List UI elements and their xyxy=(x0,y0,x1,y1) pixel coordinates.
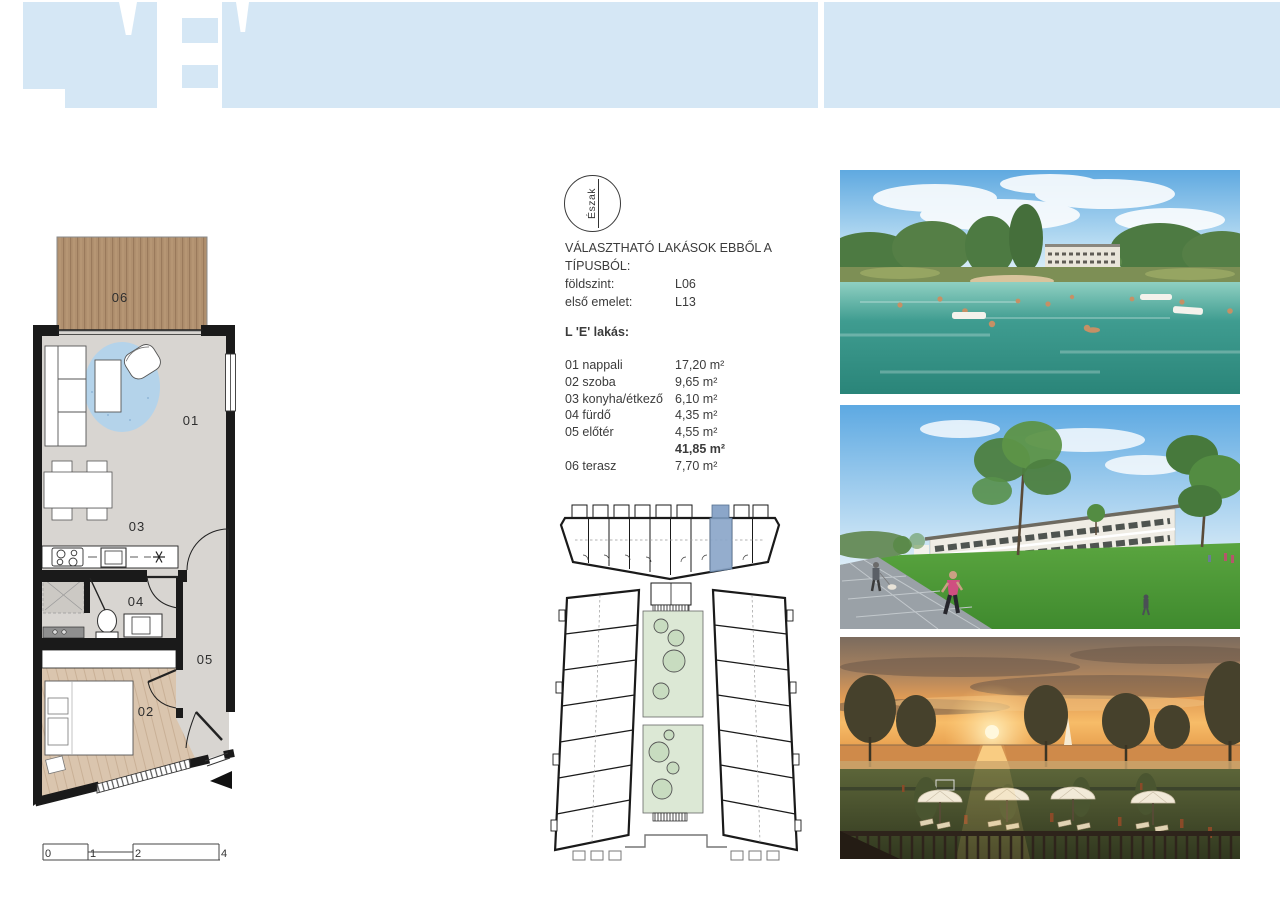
scale-0: 0 xyxy=(45,848,51,860)
label-terrace: 06 xyxy=(112,290,128,305)
brochure-page: L'E' Észak VÁLASZTHATÓ LAKÁSOK EBBŐL A T… xyxy=(0,0,1280,904)
photo-lake xyxy=(840,170,1240,394)
keyplan-right-wing xyxy=(713,590,801,850)
wardrobe xyxy=(42,650,176,668)
highlighted-unit xyxy=(710,505,732,572)
toilet xyxy=(98,610,117,633)
site-keyplan xyxy=(551,505,801,860)
water xyxy=(840,282,1240,394)
label-kitchen: 03 xyxy=(129,519,145,534)
washer xyxy=(124,614,162,637)
keyplan-left-wing xyxy=(551,590,639,850)
scale-2: 2 xyxy=(135,848,141,860)
apartment-floorplan: 01 06 03 04 05 02 0 1 2 4 xyxy=(33,237,236,860)
photo-sunset xyxy=(840,637,1240,859)
scale-4: 4 xyxy=(221,848,227,860)
label-living: 01 xyxy=(183,413,199,428)
sofa xyxy=(45,346,86,446)
kitchen-counter xyxy=(42,546,178,568)
keyplan-bottom-tabs xyxy=(573,851,779,860)
scale-bar xyxy=(43,844,220,860)
keyplan-courtyard xyxy=(643,583,703,821)
keyplan-bottom-path xyxy=(625,835,727,847)
photo-building xyxy=(840,405,1240,629)
coffee-table xyxy=(95,360,121,412)
label-bedroom: 02 xyxy=(138,704,154,719)
sun xyxy=(985,725,999,739)
label-hall: 05 xyxy=(197,652,213,667)
entry-arrow xyxy=(210,771,232,789)
scale-1: 1 xyxy=(90,848,96,860)
label-bath: 04 xyxy=(128,594,144,609)
terrace-deck xyxy=(57,237,207,331)
